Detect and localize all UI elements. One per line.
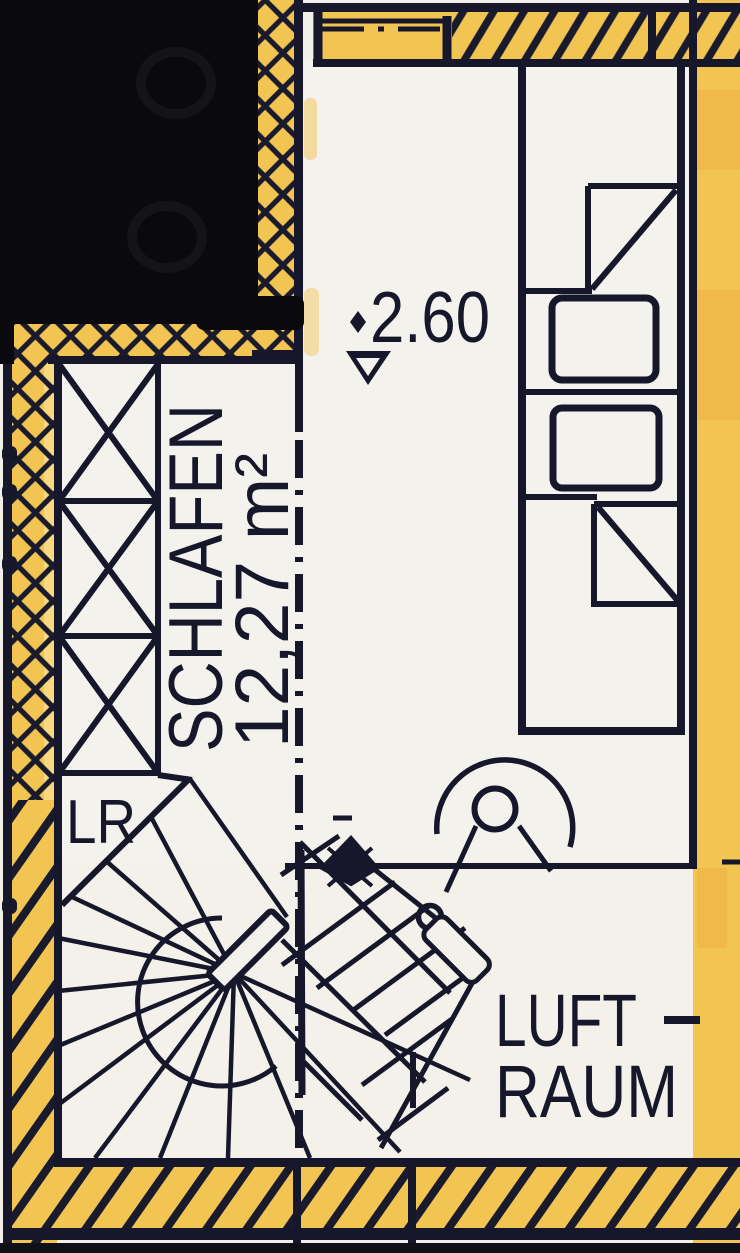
svg-text:LR: LR — [66, 788, 136, 857]
svg-text:RAUM: RAUM — [495, 1050, 678, 1133]
svg-text:12,27 m²: 12,27 m² — [220, 453, 305, 748]
svg-text:2.60: 2.60 — [370, 278, 490, 358]
